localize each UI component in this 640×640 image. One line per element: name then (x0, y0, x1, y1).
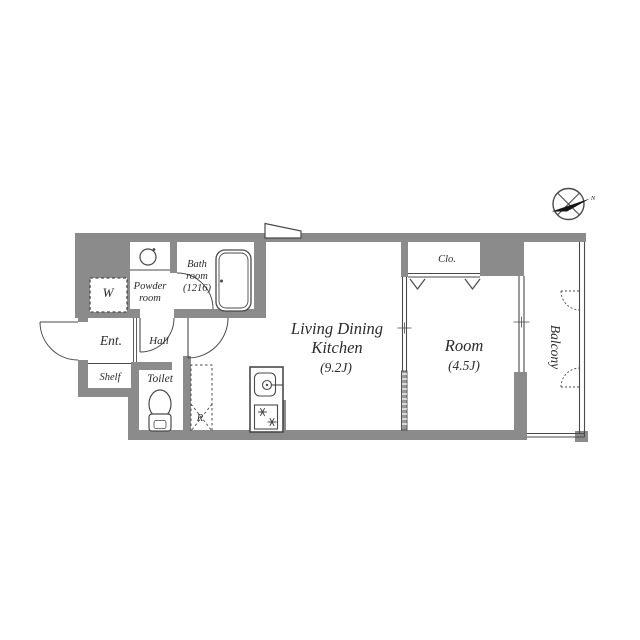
bath-label-line3: (1216) (183, 283, 211, 294)
wall-powder-bath-divider (170, 242, 177, 273)
wall-toilet-top (138, 362, 172, 370)
ldk-label-line2: Kitchen (310, 338, 362, 357)
washbasin-icon (140, 249, 156, 265)
ldk-area-label: (9.2J) (320, 360, 352, 375)
ldk-label-line1: Living Dining (290, 319, 383, 338)
partition-pocket (402, 371, 408, 430)
wall-bottom-main (130, 430, 527, 440)
bath-label-line1: Bath (187, 259, 207, 270)
balcony-dashed-lower (561, 368, 580, 387)
wardrobe-label: W (103, 285, 115, 300)
room-label: Room (444, 336, 484, 355)
closet-front-lines (408, 274, 480, 278)
hall-label: Hall (148, 335, 169, 347)
closet-hanger-icon (410, 279, 425, 289)
floor-plan-svg: Living Dining Kitchen (9.2J) Room (4.5J)… (0, 0, 640, 640)
wall-toilet-right (183, 356, 191, 432)
entrance-step-line (134, 318, 137, 362)
room-window-tick (514, 317, 530, 328)
bathtub-drain-dot (220, 280, 223, 283)
closet-label: Clo. (438, 254, 456, 265)
kitchen-faucet-dot (266, 384, 268, 386)
balcony-right-rail (580, 242, 585, 437)
balcony-dashed-upper (561, 291, 580, 310)
entrance-door-arc (40, 322, 78, 360)
wall-bath-right (254, 233, 266, 318)
wall-under-bath (174, 309, 266, 318)
compass-north-label: N (590, 195, 596, 202)
bath-label-line2: room (186, 271, 208, 282)
washbasin-faucet-dot (153, 248, 156, 251)
wall-partition-top (401, 242, 408, 277)
powder-label-line2: room (139, 293, 161, 304)
floor-plan-page: Living Dining Kitchen (9.2J) Room (4.5J)… (0, 0, 640, 640)
hall-door-arc (188, 318, 228, 358)
vent-wedge (265, 224, 301, 239)
powder-label-line1: Powder (133, 281, 168, 292)
toilet-label: Toilet (147, 373, 174, 385)
closet-hanger-icon (465, 279, 480, 289)
wall-room-right-lower (514, 372, 527, 432)
wall-left-upper (78, 309, 88, 322)
entrance-label: Ent. (99, 333, 122, 348)
shelf-label: Shelf (100, 372, 123, 383)
balcony-label: Balcony (548, 325, 563, 369)
partition-center-tick (398, 323, 412, 334)
wall-top (75, 233, 586, 242)
refrigerator-label: R (196, 413, 204, 424)
compass-icon (552, 189, 591, 220)
wall-closet-right-block (480, 242, 524, 276)
wall-shelf-toilet-divider (131, 362, 139, 397)
room-area-label: (4.5J) (448, 358, 480, 373)
